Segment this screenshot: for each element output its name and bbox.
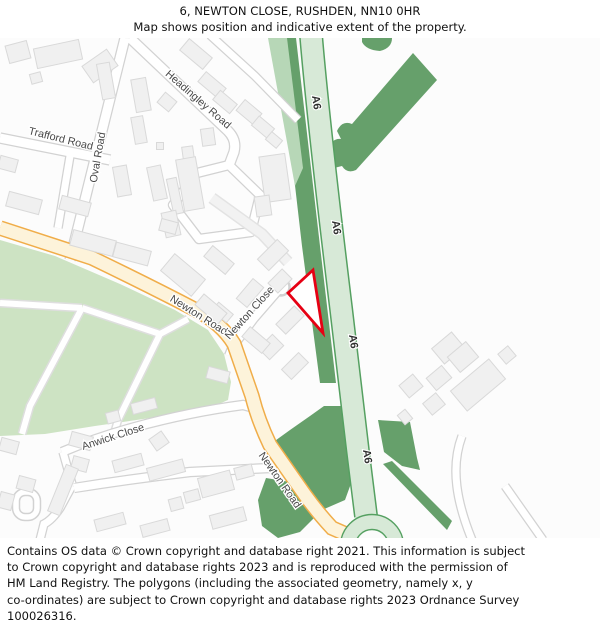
copyright-line: HM Land Registry. The polygons (includin… <box>7 575 592 591</box>
road-label-a6-1: A6 <box>309 95 323 111</box>
road-label-a6-3: A6 <box>346 334 360 350</box>
building <box>254 195 272 217</box>
copyright-line: Contains OS data © Crown copyright and d… <box>7 543 592 559</box>
map-container: Trafford Road Oval Road Headingley Road … <box>0 38 600 538</box>
copyright-notice: Contains OS data © Crown copyright and d… <box>0 538 600 624</box>
copyright-line: 100026316. <box>7 608 592 624</box>
copyright-line: to Crown copyright and database rights 2… <box>7 559 592 575</box>
road-label-a6-4: A6 <box>360 449 374 465</box>
road-label-a6-2: A6 <box>329 220 343 236</box>
building <box>157 143 164 150</box>
property-map: Trafford Road Oval Road Headingley Road … <box>0 38 600 538</box>
building <box>168 497 184 512</box>
map-title: 6, NEWTON CLOSE, RUSHDEN, NN10 0HR Map s… <box>0 0 600 38</box>
property-address: 6, NEWTON CLOSE, RUSHDEN, NN10 0HR <box>0 3 600 19</box>
copyright-line: co-ordinates) are subject to Crown copyr… <box>7 592 592 608</box>
map-subtitle: Map shows position and indicative extent… <box>0 19 600 35</box>
building <box>200 128 215 147</box>
building <box>29 72 42 85</box>
